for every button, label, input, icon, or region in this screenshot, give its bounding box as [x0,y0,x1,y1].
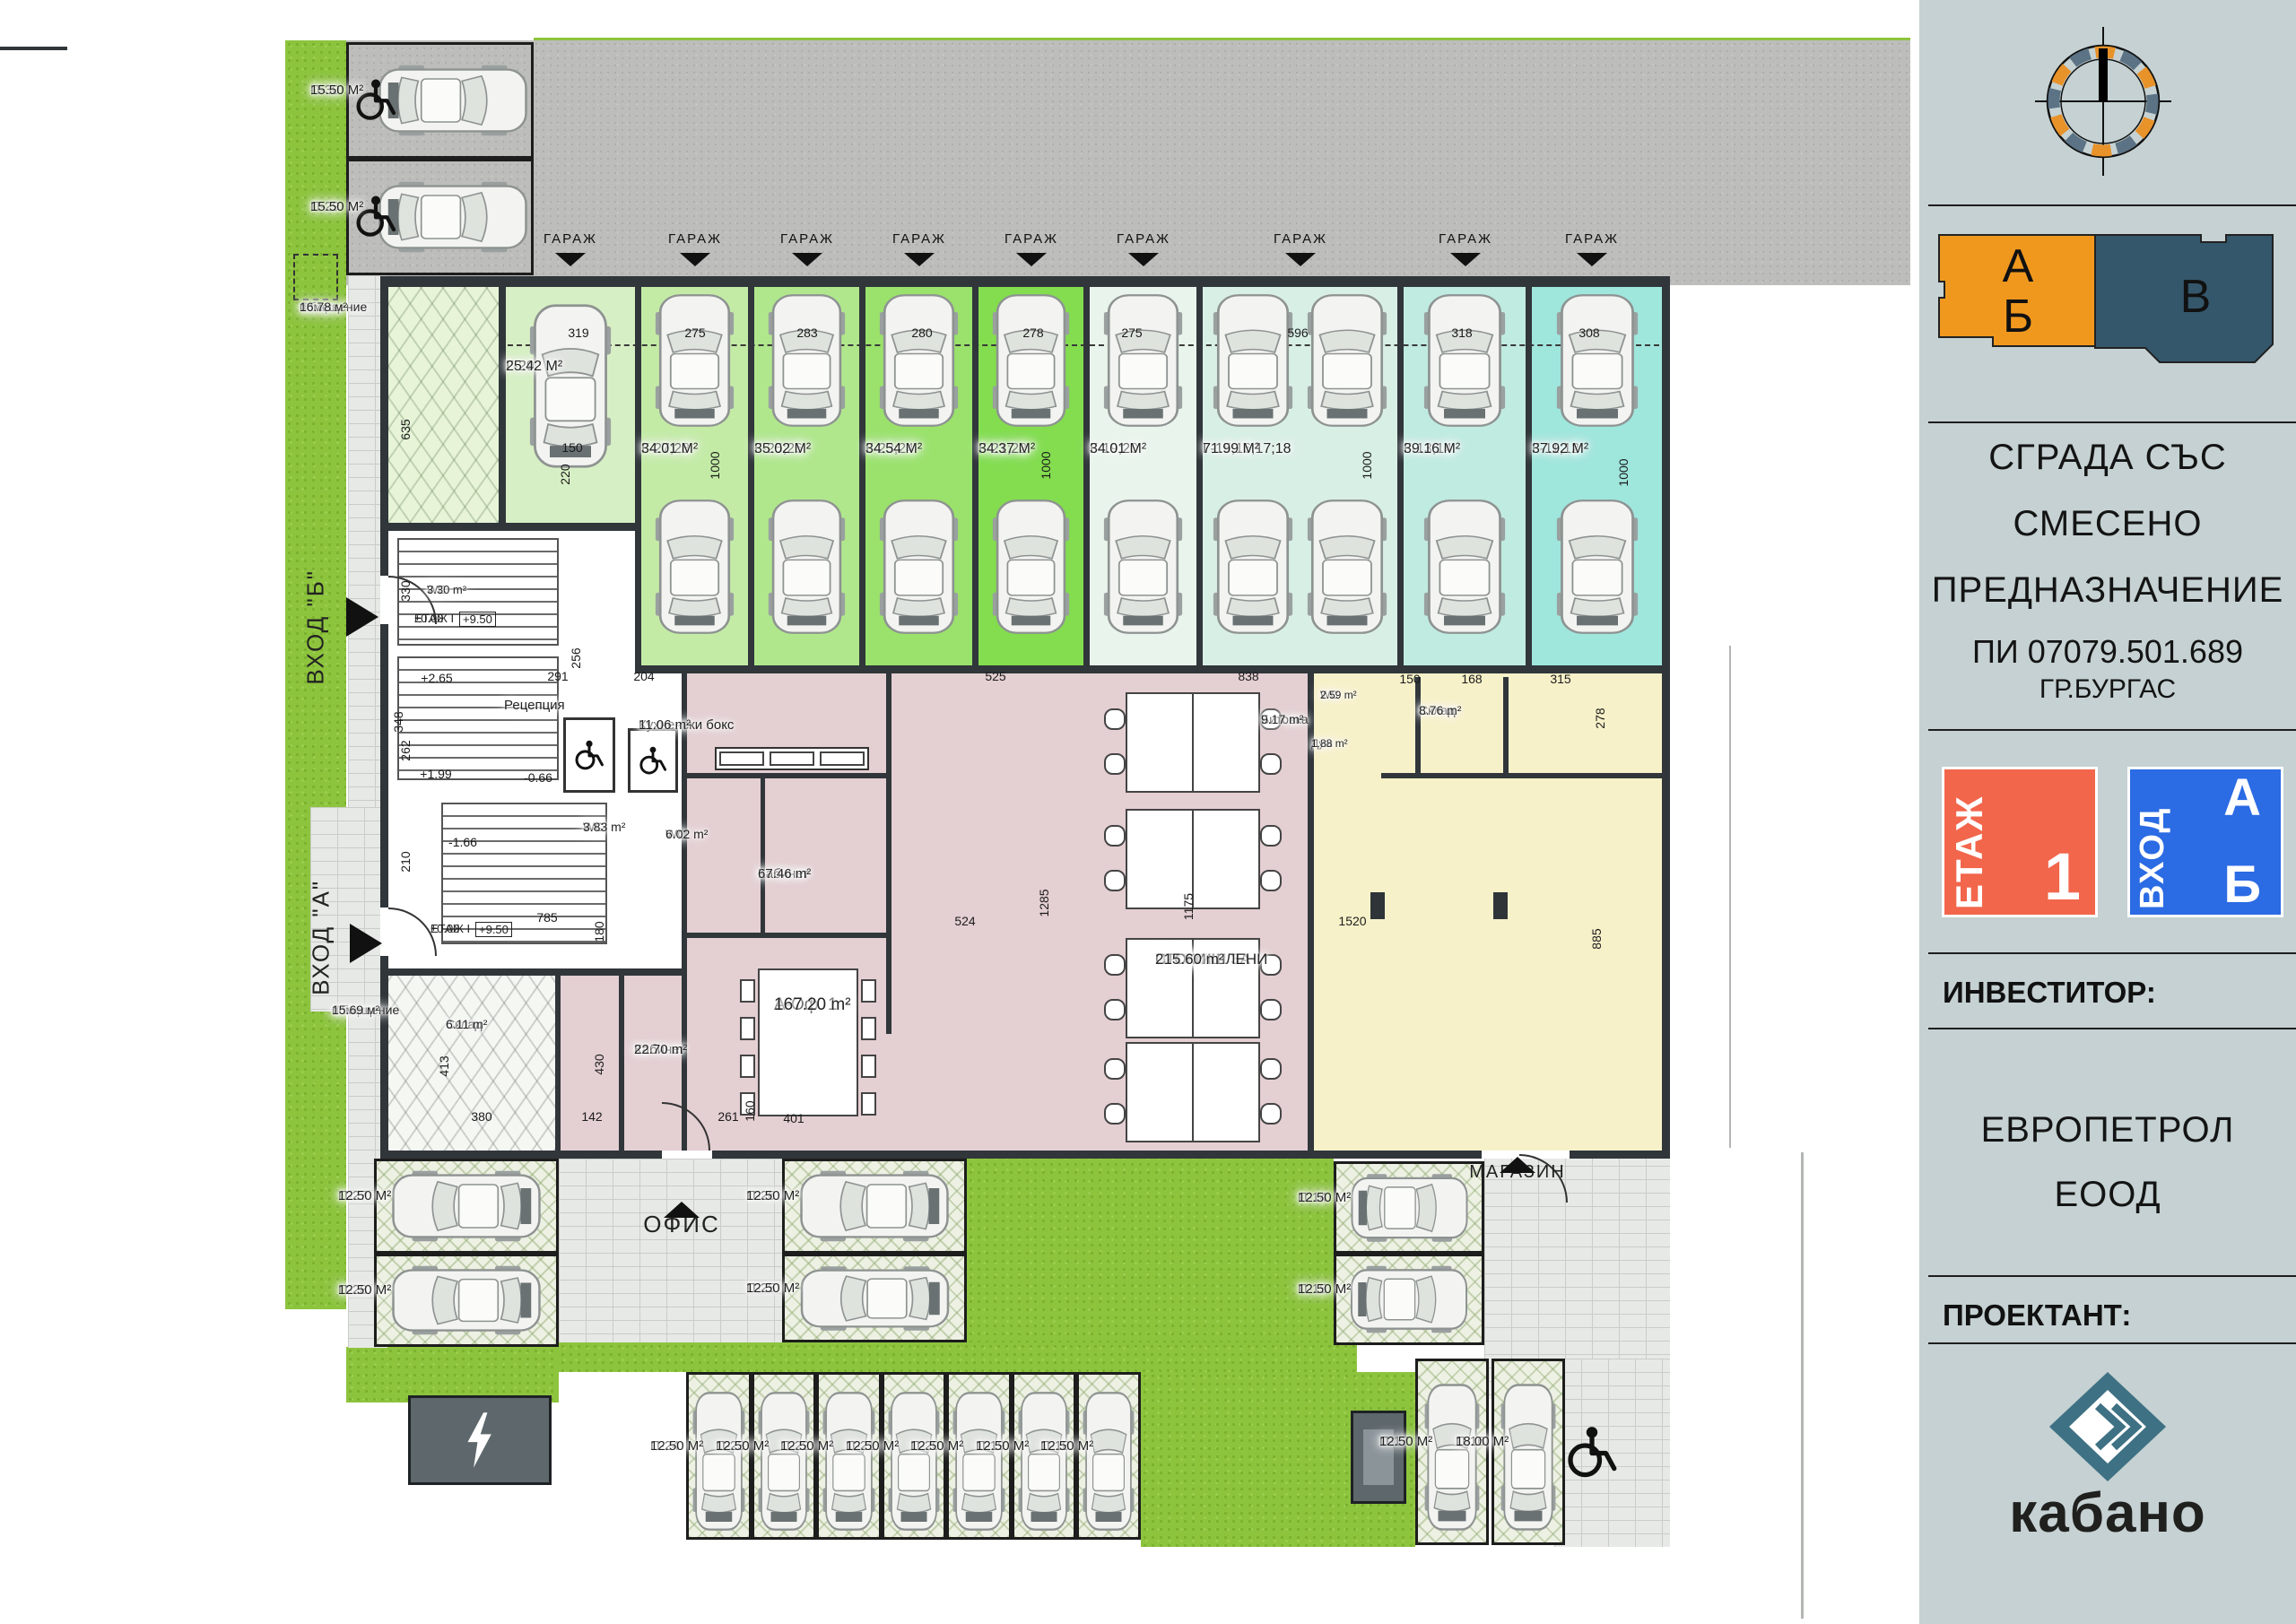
car-icon [768,499,846,635]
garage-arrow-icon [1450,253,1481,266]
entrance-badge-value-a: А [2223,768,2261,828]
dimension-label: 380 [455,1109,509,1124]
divider [1928,1028,2296,1029]
garage-arrow-icon [680,253,710,266]
wall [380,276,388,1159]
entrance-b-label: ВХОД "Б" [302,546,330,708]
garage-arrow-icon [792,253,822,266]
wall [555,973,561,1152]
car-icon [692,1391,745,1532]
investor-name-line: ЕВРОПЕТРОЛ [1919,1110,2296,1151]
wall [1568,1151,1662,1159]
garage-sign-label: ГАРАЖ [1247,231,1354,247]
elev-wheelchair-icon [563,717,615,793]
car-icon [1083,1391,1135,1532]
chair [861,1092,876,1116]
wall [972,285,978,665]
dimension-label: 524 [938,914,992,928]
wall [1196,285,1203,665]
wall [859,285,865,665]
garage-sign-label: ГАРАЖ [517,231,624,247]
grass-mid [967,1152,1334,1372]
chair [740,1055,755,1078]
dimension-label: 596 [1271,326,1325,340]
chair [1260,999,1282,1020]
car-icon [879,293,959,428]
wall [1381,773,1670,778]
car-icon [1103,499,1183,635]
car-icon [799,1265,950,1331]
chair [1104,1103,1126,1125]
garage-sign-label: ГАРАЖ [1412,231,1519,247]
floor-plan-sheet: ГАРАЖГАРАЖГАРАЖГАРАЖГАРАЖГАРАЖГАРАЖГАРАЖ… [0,0,2296,1624]
dimension-label: 150 [545,440,599,455]
garage-sign-label: ГАРАЖ [641,231,749,247]
car-icon [1103,293,1183,428]
column [1493,892,1508,919]
car-icon [768,293,846,428]
door-gap [380,576,388,624]
dimension-label: 785 [520,910,574,925]
dimension-label: -1.66 [436,835,490,849]
project-title-line: СГРАДА СЪС [1919,438,2296,478]
wall [380,276,1670,287]
wheelchair-icon [1564,1424,1620,1484]
zone-shop [1314,671,1662,1151]
dimension-label: 278 [1593,691,1607,745]
car-icon [1424,1383,1480,1532]
wall [886,935,891,1034]
dimension-label: 261 [701,1109,755,1124]
entrance-b-arrow-icon [346,597,378,637]
project-title-line: ПРЕДНАЗНАЧЕНИЕ [1919,570,2296,611]
building-key-diagram: А Б В [1935,226,2280,384]
svg-text:А: А [2003,240,2034,292]
car-icon [822,1391,875,1532]
car-icon [758,1391,810,1532]
city-label: ГР.БУРГАС [1919,674,2296,705]
investor-name-line: ЕООД [1919,1175,2296,1215]
kabano-logo-icon [2040,1370,2175,1483]
site-plan: ГАРАЖГАРАЖГАРАЖГАРАЖГАРАЖГАРАЖГАРАЖГАРАЖ… [0,0,1919,1624]
car-icon [879,499,959,635]
wall [1503,677,1509,776]
car-icon [799,1170,950,1242]
desk-pair [1126,692,1260,793]
car-icon [1350,1265,1468,1333]
divider [1928,729,2296,731]
entrance-badge-value-b: Б [2223,855,2261,915]
chair [1260,1058,1282,1080]
dimension-label: 204 [617,669,671,683]
car-icon [655,293,735,428]
chair [1104,708,1126,730]
dimension-label: 280 [895,326,949,340]
wall [886,671,891,935]
divider [1928,204,2296,206]
car-icon [1307,499,1387,635]
kabano-logo-text: кабано [1919,1481,2296,1545]
transformer-unit [1351,1411,1406,1504]
car-icon [1018,1391,1070,1532]
wall [1662,283,1670,1159]
entrance-shop-arrow-icon [1500,1157,1535,1173]
wall [687,773,890,778]
chair [1104,825,1126,847]
svg-text:Б: Б [2003,291,2033,343]
chair [1104,1058,1126,1080]
garage-arrow-icon [904,253,935,266]
dimension-label: 291 [531,669,585,683]
grass-bottom-left [346,1347,559,1403]
dimension-label: 348 [391,695,405,749]
entrance-a-label: ВХОД "А" [308,856,335,1018]
garage-arrow-icon [555,253,586,266]
dimension-label: 1000 [1039,439,1053,492]
dimension-label: 319 [552,326,605,340]
dimension-label: 210 [398,835,413,889]
dimension-label: 315 [1534,672,1587,686]
investor-heading: ИНВЕСТИТОР: [1943,976,2156,1010]
chair [740,1017,755,1040]
driveway [346,40,1910,285]
dimension-label: 150 [1383,672,1437,686]
plaza-office [559,1159,782,1342]
door-gap [662,1151,712,1159]
wall [687,933,891,938]
divider [1928,1275,2296,1277]
grass-band-bottom [559,1342,1357,1372]
garage-arrow-icon [1285,253,1316,266]
car-icon [378,181,528,253]
dimension-label: +2.65 [410,671,464,685]
dimension-label: 283 [780,326,834,340]
dimension-label: 278 [1006,326,1060,340]
divider [1928,1342,2296,1344]
boundary-line [1729,646,1731,1148]
chair [1104,753,1126,775]
wall [748,285,754,665]
garage-arrow-icon [1128,253,1159,266]
dimension-label: 1000 [1360,439,1374,492]
car-icon [655,499,735,635]
svg-text:В: В [2180,271,2212,323]
dimension-label: 1175 [1181,880,1196,934]
chair [1260,1103,1282,1125]
dimension-label: +1.99 [409,767,463,781]
divider [1928,421,2296,423]
dimension-label: 220 [558,447,572,501]
wall [619,973,624,1152]
chair [1260,753,1282,775]
chair [1260,870,1282,891]
garage-arrow-icon [1577,253,1607,266]
wall [384,523,641,531]
transformer-unit [408,1395,552,1485]
dimension-label: 1285 [1037,876,1051,930]
dimension-label: 838 [1222,669,1275,683]
wall [761,776,765,935]
info-sidebar: А Б В СГРАДА СЪС СМЕСЕНО ПРЕДНАЗНАЧЕНИЕ … [1919,0,2296,1624]
car-icon [952,1391,1005,1532]
dimension-label: 635 [398,403,413,456]
dimension-label: 308 [1562,326,1616,340]
dimension-label: 413 [437,1039,451,1093]
wall [1526,285,1532,665]
garage-sign-label: ГАРАЖ [753,231,861,247]
car-icon [1307,293,1387,428]
boundary-line [1801,1152,1804,1619]
room-bike-office [387,976,555,1151]
car-icon [1423,293,1506,428]
car-icon [1213,499,1293,635]
divider [1928,952,2296,954]
elev-wheelchair-icon [628,728,678,793]
dimension-label: 1000 [1616,446,1631,499]
garage-sign-label: ГАРАЖ [978,231,1085,247]
wall [384,968,686,976]
chair [740,979,755,1003]
dimension-label: 525 [969,669,1022,683]
compass-icon [2031,27,2175,176]
entrance-badge-label: ВХОД [2134,775,2172,909]
dimension-label: 275 [1105,326,1159,340]
car-icon [1556,499,1639,635]
car-icon [1556,293,1639,428]
wall [0,47,67,50]
floor-badge: ЕТАЖ 1 [1942,767,2098,917]
wall [635,285,641,665]
chair [861,1055,876,1078]
dimension-label: 885 [1589,912,1604,966]
dimension-label: 1520 [1326,914,1379,928]
garage-sign-label: ГАРАЖ [1090,231,1197,247]
desk-pair [1126,1042,1260,1142]
wall [682,671,687,1159]
entrance-office-arrow-icon [664,1202,700,1218]
wall [635,665,1663,673]
wall [1083,285,1090,665]
dimension-label: 1000 [708,439,722,492]
car-icon [992,293,1070,428]
dimension-label: 401 [767,1111,821,1125]
entrance-badge: ВХОД А Б [2127,767,2283,917]
kitchen-counter [715,747,869,770]
car-icon [992,499,1070,635]
dimension-label: 142 [565,1109,619,1124]
project-title-line: СМЕСЕНО [1919,504,2296,544]
wall [499,285,506,527]
entrance-a-arrow-icon [350,924,382,963]
chair [1104,954,1126,976]
designer-heading: ПРОЕКТАНТ: [1943,1298,2131,1333]
garage-sign-label: ГАРАЖ [865,231,973,247]
chair [1104,870,1126,891]
car-icon [391,1265,542,1335]
floor-badge-label: ЕТАЖ [1948,775,1991,909]
car-icon [391,1170,542,1242]
chair [861,1017,876,1040]
chair [1104,999,1126,1020]
dimension-label: 318 [1435,326,1489,340]
dimension-label: 180 [592,905,606,959]
dimension-label: 168 [1445,672,1499,686]
garage-sign-label: ГАРАЖ [1538,231,1646,247]
wall [1415,677,1421,776]
door-swing [388,908,437,956]
chair [1260,825,1282,847]
dimension-label: 430 [592,1038,606,1091]
floor-badge-value: 1 [2044,838,2081,915]
car-icon [1500,1383,1556,1532]
conference-table [758,968,858,1116]
car-icon [888,1391,940,1532]
wall [1397,285,1404,665]
dimension-label: 275 [668,326,722,340]
wall [711,1151,1482,1159]
utility-pad [293,254,338,300]
car-icon [1213,293,1293,428]
car-icon [378,65,528,136]
parcel-number: ПИ 07079.501.689 [1919,633,2296,671]
car-icon [1423,499,1506,635]
dimension-label: -0.66 [511,770,565,785]
garage-arrow-icon [1016,253,1047,266]
dimension-label: 330 [398,564,413,618]
chair [861,979,876,1003]
